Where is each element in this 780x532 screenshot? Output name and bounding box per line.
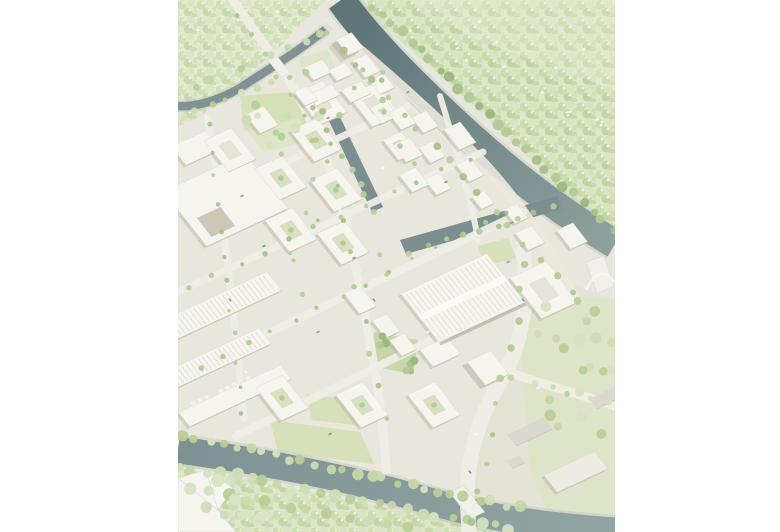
artwork-frame [178, 0, 615, 532]
masterplan-render [178, 0, 615, 532]
